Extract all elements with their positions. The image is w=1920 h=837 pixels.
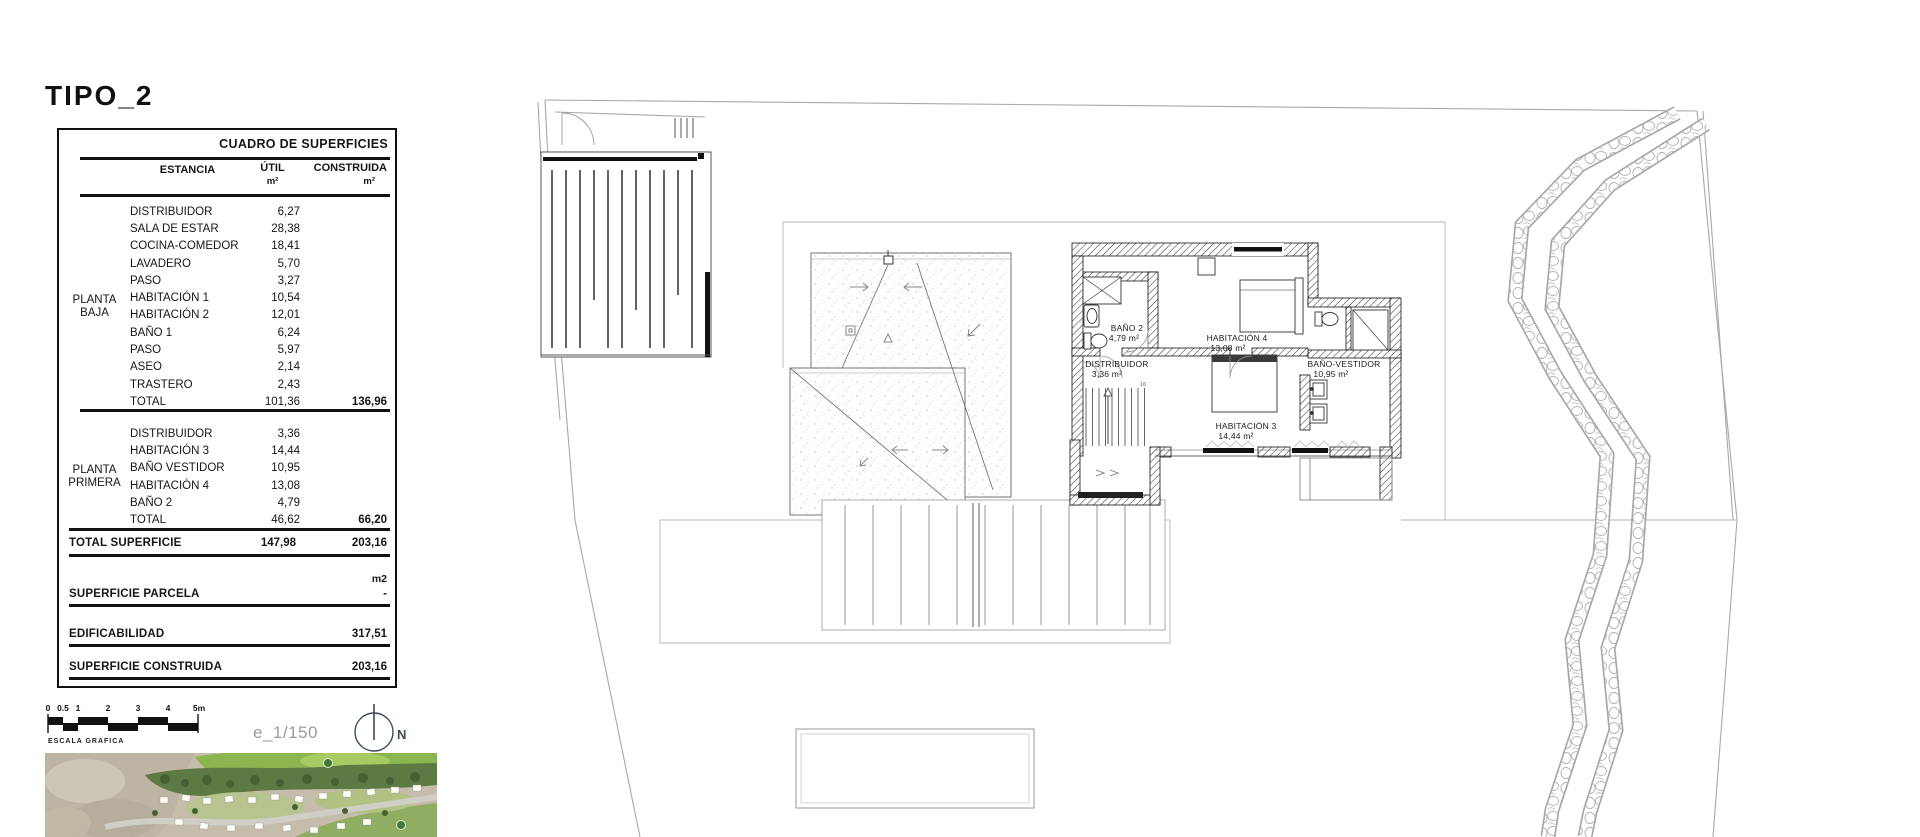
aerial-photo [39, 749, 437, 837]
compass-n-label: N [397, 727, 406, 742]
room-area-distribuidor: 3,36 m² [1092, 369, 1122, 379]
pergola-deck [541, 113, 711, 357]
stair-count-label: 16 [1140, 382, 1147, 388]
roof-plan [790, 250, 1011, 515]
room-area-bano2: 4,79 m² [1109, 333, 1139, 343]
scale-tick-0: 0 [46, 703, 51, 713]
scale-bar-label: ESCALA GRAFICA [48, 738, 124, 745]
stone-path [1515, 113, 1706, 837]
scale-tick-05: 0.5 [57, 703, 69, 713]
room-label-bano2: BAÑO 2 [1111, 323, 1143, 333]
bedroom3-bed [1212, 355, 1277, 412]
scale-bar: 0 0.5 1 2 3 4 5m ESCALA GRAFICA e_1/150 [46, 703, 318, 745]
scale-tick-5m: 5m [193, 703, 206, 713]
pool-outline [796, 729, 1034, 808]
room-label-distribuidor: DISTRIBUIDOR [1085, 359, 1148, 369]
drawing-sheet: BAÑO 2 4,79 m² HABITACIÓN 4 13,08 m² DIS… [0, 0, 1920, 837]
scale-tick-3: 3 [136, 703, 141, 713]
wood-deck [822, 500, 1165, 630]
north-compass-icon: N [355, 704, 406, 751]
room-area-bano-vestidor: 10,95 m² [1313, 369, 1348, 379]
window-bar [1234, 247, 1282, 252]
room-label-bano-vestidor: BAÑO-VESTIDOR [1308, 359, 1381, 369]
scale-tick-2: 2 [106, 703, 111, 713]
scale-ratio-text: e_1/150 [253, 723, 318, 742]
room-area-habitacion4: 13,08 m² [1210, 343, 1245, 353]
room-label-habitacion3: HABITACIÓN 3 [1216, 421, 1277, 431]
scale-tick-1: 1 [76, 703, 81, 713]
scale-tick-4: 4 [166, 703, 171, 713]
site-plan-drawing: BAÑO 2 4,79 m² HABITACIÓN 4 13,08 m² DIS… [0, 0, 1920, 837]
room-label-habitacion4: HABITACIÓN 4 [1207, 333, 1268, 343]
room-area-habitacion3: 14,44 m² [1218, 431, 1253, 441]
